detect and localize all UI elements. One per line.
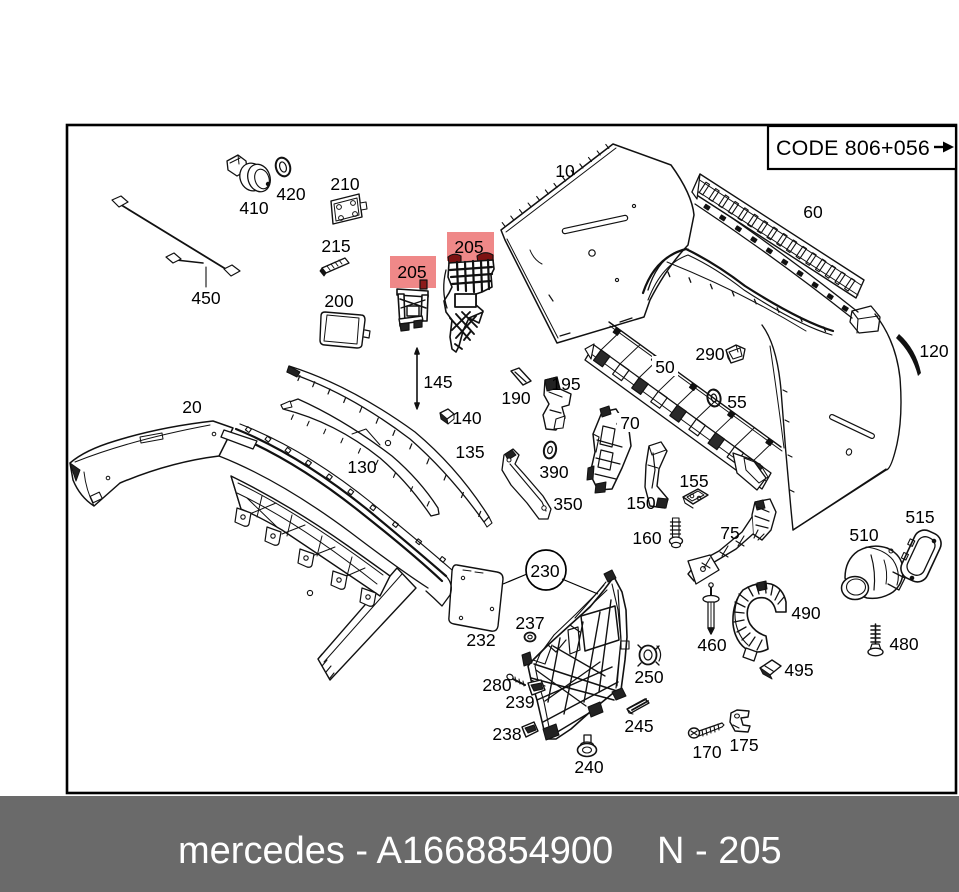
svg-text:10: 10 <box>555 161 575 181</box>
svg-text:205: 205 <box>397 262 426 282</box>
svg-text:190: 190 <box>501 388 530 408</box>
svg-text:350: 350 <box>553 494 582 514</box>
svg-text:50: 50 <box>655 357 675 377</box>
svg-text:195: 195 <box>551 374 580 394</box>
svg-text:245: 245 <box>624 716 653 736</box>
svg-text:210: 210 <box>330 174 359 194</box>
svg-text:120: 120 <box>919 341 948 361</box>
svg-text:290: 290 <box>695 344 724 364</box>
svg-text:237: 237 <box>515 613 544 633</box>
svg-text:510: 510 <box>849 525 878 545</box>
svg-text:450: 450 <box>191 288 220 308</box>
svg-text:515: 515 <box>905 507 934 527</box>
svg-text:135: 135 <box>455 442 484 462</box>
svg-text:55: 55 <box>727 392 746 412</box>
svg-text:232: 232 <box>466 630 495 650</box>
svg-text:460: 460 <box>697 635 726 655</box>
svg-text:230: 230 <box>530 561 559 581</box>
svg-text:480: 480 <box>889 634 918 654</box>
svg-text:240: 240 <box>574 757 603 777</box>
svg-text:410: 410 <box>239 198 268 218</box>
svg-text:20: 20 <box>182 397 202 417</box>
svg-text:140: 140 <box>452 408 481 428</box>
svg-text:239: 239 <box>505 692 534 712</box>
svg-text:175: 175 <box>729 735 758 755</box>
svg-text:495: 495 <box>784 660 813 680</box>
svg-text:200: 200 <box>324 291 353 311</box>
svg-text:145: 145 <box>423 372 452 392</box>
svg-text:205: 205 <box>454 237 483 257</box>
svg-text:390: 390 <box>539 462 568 482</box>
svg-text:170: 170 <box>692 742 721 762</box>
svg-text:155: 155 <box>679 471 708 491</box>
svg-text:N - 205: N - 205 <box>657 830 782 872</box>
svg-text:150: 150 <box>626 493 655 513</box>
svg-text:130: 130 <box>347 457 376 477</box>
svg-text:215: 215 <box>321 236 350 256</box>
svg-text:250: 250 <box>634 667 663 687</box>
svg-text:160: 160 <box>632 528 661 548</box>
svg-text:70: 70 <box>620 413 640 433</box>
svg-text:490: 490 <box>791 603 820 623</box>
svg-text:mercedes - A1668854900: mercedes - A1668854900 <box>178 830 613 872</box>
svg-text:75: 75 <box>720 523 739 543</box>
svg-text:238: 238 <box>492 724 521 744</box>
svg-text:60: 60 <box>803 202 823 222</box>
svg-text:420: 420 <box>276 184 305 204</box>
svg-text:CODE 806+056: CODE 806+056 <box>776 136 930 160</box>
